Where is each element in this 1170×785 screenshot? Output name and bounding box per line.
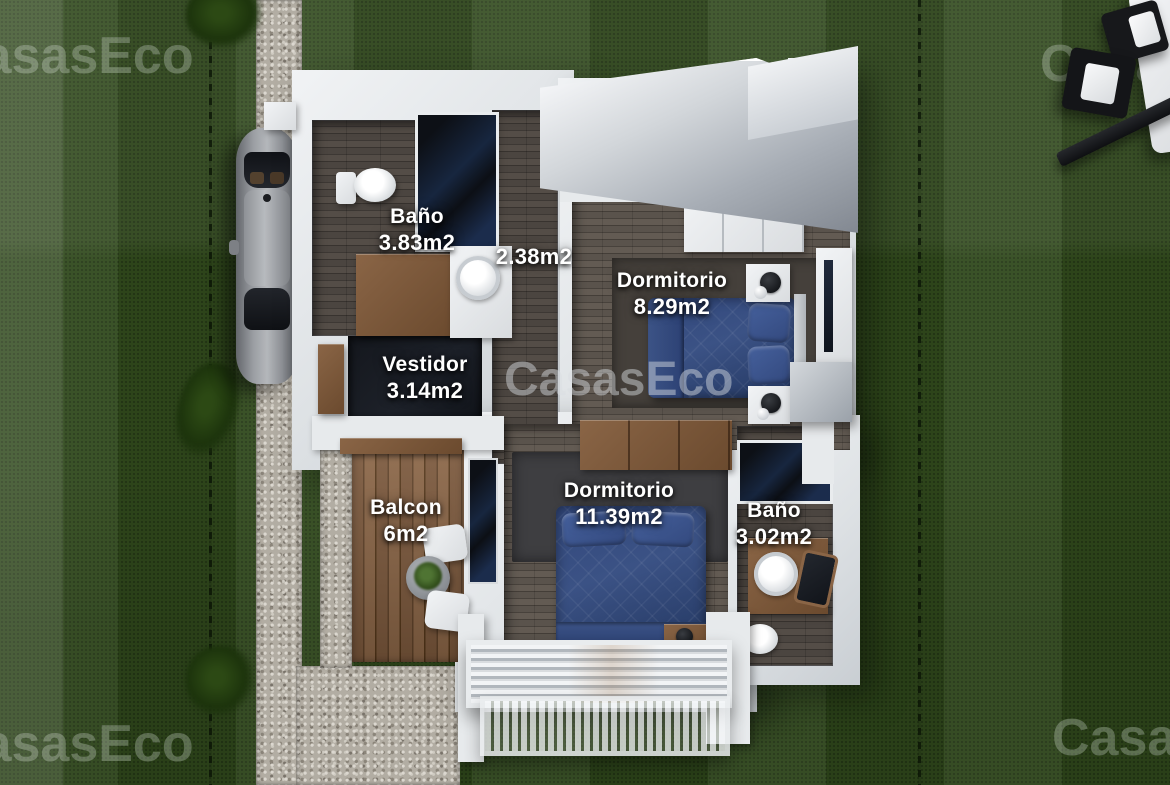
nightstand (748, 386, 790, 424)
room-label-balcony: Balcon 6m2 (326, 497, 486, 545)
window-bay-east (816, 248, 852, 366)
room-area: 8.29m2 (634, 296, 710, 318)
room-name: Baño (390, 206, 444, 227)
potted-plant (414, 562, 442, 590)
room-label-bedroom-top: Dormitorio 8.29m2 (582, 270, 762, 318)
room-name: Dormitorio (617, 270, 727, 291)
room-area: 3.83m2 (379, 232, 455, 254)
desk (580, 420, 732, 470)
window-glass (824, 260, 833, 352)
room-area: 6m2 (384, 523, 429, 545)
planter-box (264, 102, 296, 130)
side-gravel-strip (320, 450, 352, 668)
dressing-bench (340, 438, 462, 454)
room-name: Dormitorio (564, 480, 674, 501)
vanity-top (356, 254, 454, 336)
room-label-hallway: 2.38m2 (464, 246, 604, 268)
floor-plan-render: CasasEco CasasEco CasasEco CasasEco (0, 0, 1170, 785)
pillow (747, 345, 791, 385)
room-label-bedroom-bottom: Dormitorio 11.39m2 (529, 480, 709, 528)
room-area: 2.38m2 (496, 246, 572, 268)
room-name: Vestidor (382, 354, 467, 375)
room-area: 3.14m2 (387, 380, 463, 402)
watermark-center: CasasEco (504, 352, 733, 407)
toilet-bowl (354, 168, 396, 202)
decor-ball (757, 408, 769, 420)
room-label-bathroom-bottom: Baño 3.02m2 (694, 500, 854, 548)
pergola-louvers-lower (480, 696, 730, 756)
wall-east-stub (802, 420, 834, 484)
roof-side-slab (790, 362, 852, 422)
room-area: 11.39m2 (575, 506, 663, 528)
toilet-tank (336, 172, 356, 204)
room-name: Baño (747, 500, 801, 521)
sink-basin (754, 552, 798, 596)
room-name: Balcon (370, 497, 442, 518)
room-area: 3.02m2 (736, 526, 812, 548)
room-label-dressing-room: Vestidor 3.14m2 (340, 354, 510, 402)
